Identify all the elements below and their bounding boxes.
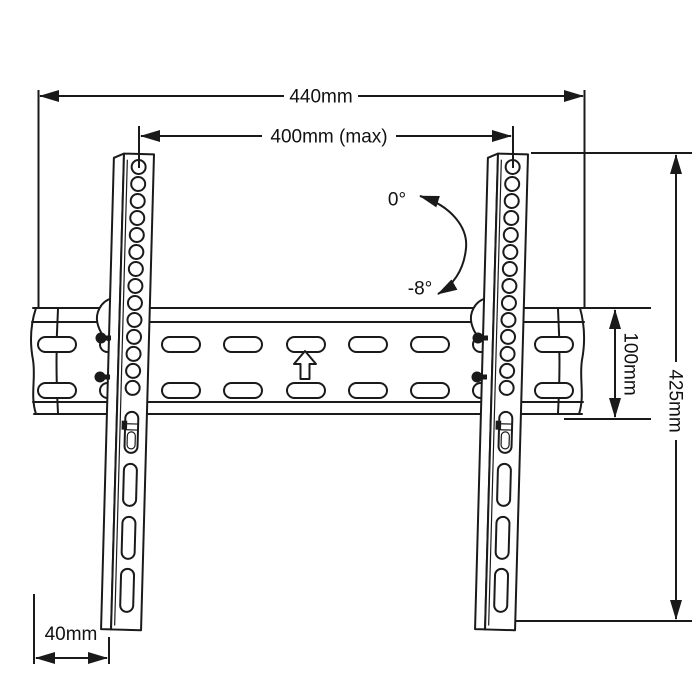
mounting-slot	[535, 383, 573, 398]
mounting-slot	[224, 383, 262, 398]
locking-knob	[96, 333, 107, 344]
tilt-lower-label: -8°	[408, 279, 433, 300]
mounting-slot	[349, 337, 387, 352]
tilt-upper-label: 0°	[388, 190, 406, 211]
locking-knob	[95, 372, 106, 383]
mounting-slot	[38, 383, 76, 398]
dimension-label-plate-height: 100mm	[619, 332, 640, 395]
locking-knob	[473, 333, 484, 344]
mounting-slot	[535, 337, 573, 352]
plate-right-end-cap	[579, 308, 584, 414]
dimension-mount-hole-width: 400mm (max)	[139, 126, 513, 168]
tilt-angle-annotation: 0° -8°	[388, 190, 466, 300]
dimension-label-overall-height: 425mm	[664, 369, 685, 432]
locking-knob	[472, 372, 483, 383]
mounting-slot	[411, 383, 449, 398]
mounting-slot	[287, 337, 325, 352]
mounting-slot	[349, 383, 387, 398]
mounting-slot	[162, 337, 200, 352]
mounting-slot	[224, 337, 262, 352]
mounting-slot	[162, 383, 200, 398]
mounting-slot	[287, 383, 325, 398]
dimension-label-overall-width: 440mm	[289, 87, 352, 108]
left-vesa-arm	[88, 153, 154, 630]
plate-left-end-cap	[31, 308, 36, 414]
diagram-canvas: 440mm 400mm (max) 425mm 100mm 40mm 0° -8…	[0, 0, 700, 700]
mounting-slot	[38, 337, 76, 352]
dimension-label-side-offset: 40mm	[45, 624, 98, 645]
dimension-side-offset: 40mm	[34, 594, 109, 664]
mounting-slot	[411, 337, 449, 352]
orientation-up-arrow-icon	[294, 351, 316, 379]
mount-diagram: 440mm 400mm (max) 425mm 100mm 40mm 0° -8…	[0, 0, 700, 700]
dimension-label-mount-hole-width: 400mm (max)	[270, 127, 387, 148]
